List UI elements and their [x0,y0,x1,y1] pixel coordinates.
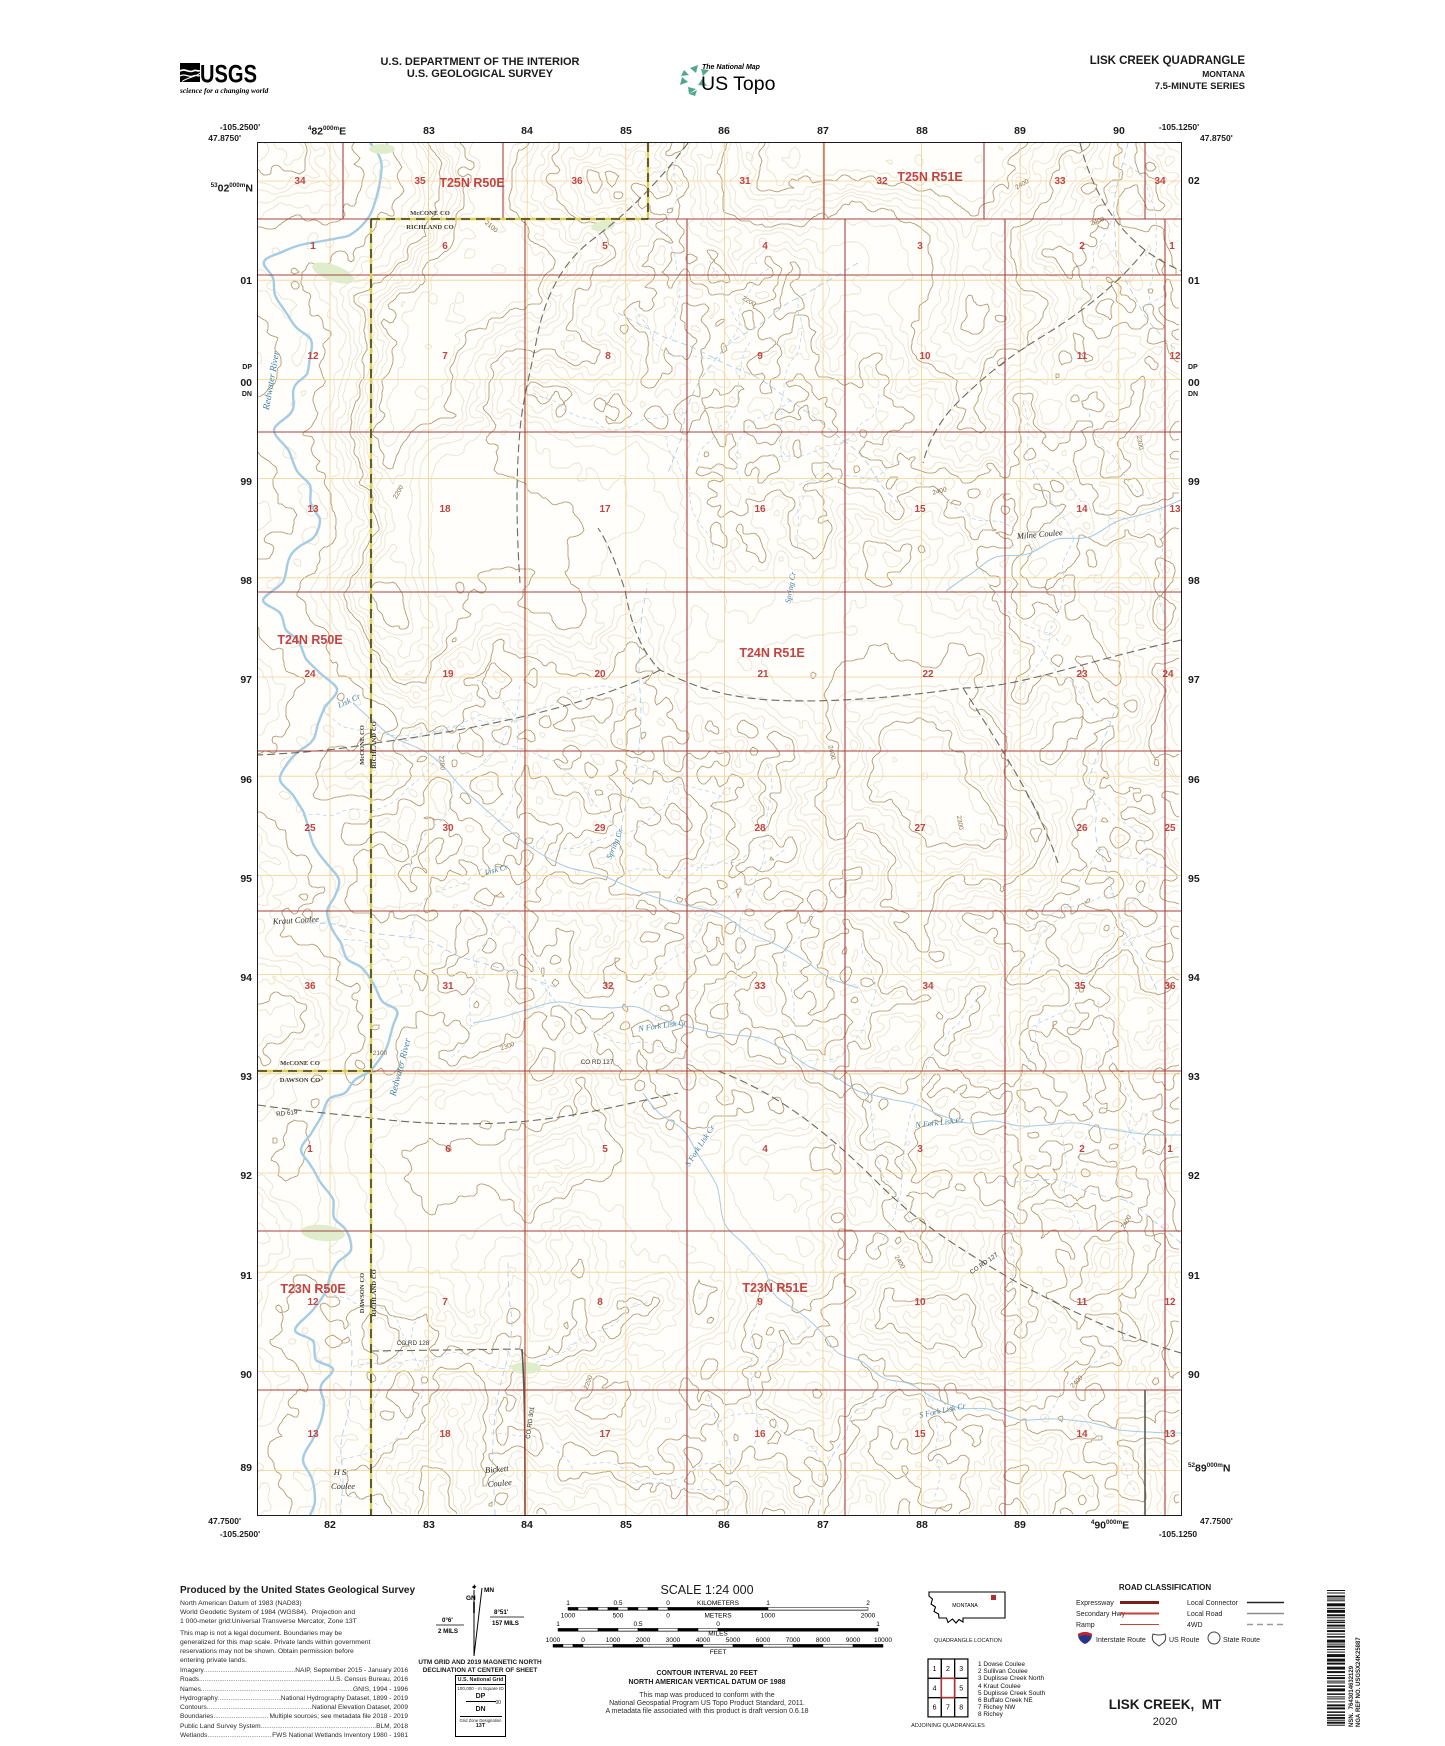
svg-text:32: 32 [876,176,888,187]
svg-text:23: 23 [1076,669,1088,680]
svg-text:12: 12 [307,1297,319,1308]
svg-text:22: 22 [922,669,934,680]
svg-text:2: 2 [1079,241,1085,252]
svg-text:8000: 8000 [816,1637,831,1644]
svg-text:DAWSON CO: DAWSON CO [359,1273,366,1313]
svg-text:24: 24 [304,669,316,680]
svg-text:2200: 2200 [741,295,757,308]
svg-text:2: 2 [866,1600,870,1607]
svg-text:S Fork Lisk Cr: S Fork Lisk Cr [683,1123,717,1168]
svg-text:S Fork Lisk Cr: S Fork Lisk Cr [918,1401,967,1420]
svg-text:10: 10 [914,1297,926,1308]
svg-text:US Topo: US Topo [701,73,776,95]
svg-text:GN: GN [466,1595,476,1602]
svg-text:METERS: METERS [704,1613,732,1620]
svg-text:13: 13 [1164,1429,1176,1440]
svg-text:18: 18 [439,1429,451,1440]
svg-text:6: 6 [442,241,448,252]
svg-text:3: 3 [917,241,923,252]
svg-text:34: 34 [1154,176,1166,187]
svg-text:2 MILS: 2 MILS [438,1628,458,1635]
svg-text:MN: MN [484,1587,494,1594]
svg-text:H S: H S [333,1467,347,1477]
svg-text:2100: 2100 [373,1050,388,1057]
svg-text:19: 19 [442,669,454,680]
svg-text:2400: 2400 [826,745,837,761]
svg-text:6: 6 [445,1144,451,1155]
svg-text:8: 8 [605,351,611,362]
svg-text:1: 1 [1167,1144,1173,1155]
svg-text:2000: 2000 [861,1613,876,1620]
svg-text:2200: 2200 [437,755,445,770]
svg-text:1000: 1000 [761,1613,776,1620]
svg-text:science for a changing world: science for a changing world [180,86,269,95]
svg-text:36: 36 [304,981,316,992]
svg-text:1: 1 [766,1600,770,1607]
svg-text:500: 500 [613,1613,624,1620]
svg-text:9000: 9000 [846,1637,861,1644]
svg-text:8°51': 8°51' [494,1609,509,1616]
svg-text:CO RD 127: CO RD 127 [581,1059,614,1066]
svg-text:Local Connector: Local Connector [1187,1600,1239,1607]
svg-text:T23N R50E: T23N R50E [280,1282,345,1296]
svg-text:Redwater River: Redwater River [262,350,282,411]
svg-text:1: 1 [876,1621,880,1628]
svg-text:12: 12 [1169,351,1181,362]
svg-text:18: 18 [439,504,451,515]
svg-text:35: 35 [414,176,426,187]
svg-text:32: 32 [602,981,614,992]
svg-text:33: 33 [754,981,766,992]
svg-text:Kraut Coulee: Kraut Coulee [272,914,320,926]
svg-text:2400: 2400 [1069,1374,1084,1389]
svg-text:7: 7 [442,351,448,362]
svg-text:1: 1 [933,1666,937,1673]
svg-text:McCONE CO: McCONE CO [280,1060,320,1067]
svg-text:25: 25 [1164,823,1176,834]
svg-text:RICHLAND CO: RICHLAND CO [371,721,378,768]
svg-text:3: 3 [959,1666,963,1673]
svg-text:0: 0 [581,1637,585,1644]
svg-text:17: 17 [599,504,611,515]
svg-text:1: 1 [556,1621,560,1628]
svg-text:N Fork Lisk Cr: N Fork Lisk Cr [637,1018,688,1034]
svg-text:16: 16 [754,1429,766,1440]
svg-text:3000: 3000 [666,1637,681,1644]
svg-text:13: 13 [1169,504,1181,515]
svg-text:14: 14 [1076,1429,1088,1440]
svg-text:21: 21 [757,669,769,680]
svg-text:1000: 1000 [606,1637,621,1644]
svg-text:Spring Cr: Spring Cr [783,570,798,604]
svg-text:CO RD 128: CO RD 128 [397,1340,430,1347]
svg-text:31: 31 [442,981,454,992]
svg-text:Redwater River: Redwater River [388,1037,413,1098]
svg-text:4: 4 [933,1685,937,1692]
svg-text:13: 13 [307,1429,319,1440]
svg-text:FEET: FEET [710,1649,727,1656]
svg-text:McCONE CO: McCONE CO [359,725,366,765]
svg-text:34: 34 [922,981,934,992]
svg-text:8: 8 [597,1297,603,1308]
svg-text:7: 7 [442,1297,448,1308]
svg-text:Bickett: Bickett [485,1463,510,1475]
svg-text:6000: 6000 [756,1637,771,1644]
svg-text:5: 5 [959,1685,963,1692]
svg-text:8: 8 [959,1705,963,1712]
svg-text:Spring Cr: Spring Cr [605,827,626,861]
svg-text:12: 12 [307,351,319,362]
svg-text:10: 10 [919,351,931,362]
svg-text:RD 619: RD 619 [276,1109,298,1118]
svg-text:Expressway: Expressway [1076,1600,1114,1607]
svg-text:24: 24 [1162,669,1174,680]
svg-text:13: 13 [307,504,319,515]
svg-text:1: 1 [1169,241,1175,252]
svg-text:USGS: USGS [200,63,257,89]
svg-text:16: 16 [754,504,766,515]
svg-text:0: 0 [666,1600,670,1607]
svg-text:4: 4 [762,241,768,252]
svg-text:2100: 2100 [483,220,499,235]
svg-text:1000: 1000 [546,1637,561,1644]
svg-text:1: 1 [310,241,316,252]
svg-text:0: 0 [666,1613,670,1620]
svg-text:McCONE CO: McCONE CO [410,210,450,217]
svg-text:KILOMETERS: KILOMETERS [697,1600,740,1607]
svg-text:36: 36 [571,176,583,187]
svg-text:6: 6 [933,1705,937,1712]
svg-text:4WD: 4WD [1187,1622,1203,1629]
svg-text:33: 33 [1054,176,1066,187]
svg-text:2000: 2000 [636,1637,651,1644]
svg-text:0.5: 0.5 [613,1600,622,1607]
svg-text:157 MILS: 157 MILS [492,1620,519,1627]
svg-text:DAWSON CO: DAWSON CO [280,1077,320,1084]
svg-text:Ramp: Ramp [1076,1622,1095,1629]
svg-text:29: 29 [594,823,606,834]
svg-text:10000: 10000 [874,1637,892,1644]
svg-text:11: 11 [1077,351,1088,362]
svg-text:20: 20 [594,669,606,680]
svg-text:15: 15 [914,1429,926,1440]
svg-text:28: 28 [754,823,766,834]
svg-text:2400: 2400 [1120,1214,1133,1230]
svg-text:Secondary Hwy: Secondary Hwy [1076,1611,1126,1618]
svg-text:T24N R50E: T24N R50E [277,633,342,647]
svg-text:2400: 2400 [1014,178,1030,191]
svg-text:T24N R51E: T24N R51E [739,646,804,660]
svg-text:0.5: 0.5 [633,1621,642,1628]
svg-text:2200: 2200 [392,484,405,500]
svg-text:1: 1 [566,1600,570,1607]
svg-text:2: 2 [1079,1144,1085,1155]
svg-text:11: 11 [1077,1297,1088,1308]
svg-text:Local Road: Local Road [1187,1611,1223,1618]
svg-text:30: 30 [442,823,454,834]
svg-text:1: 1 [307,1144,313,1155]
svg-text:4000: 4000 [696,1637,711,1644]
svg-text:14: 14 [1076,504,1088,515]
svg-text:Interstate Route: Interstate Route [1096,1637,1146,1644]
svg-text:26: 26 [1076,823,1088,834]
svg-text:9: 9 [757,351,763,362]
svg-text:7: 7 [946,1705,950,1712]
svg-text:4: 4 [762,1144,768,1155]
svg-text:0: 0 [716,1621,720,1628]
svg-text:31: 31 [739,176,751,187]
svg-text:Coulee: Coulee [487,1477,512,1489]
svg-text:34: 34 [294,176,306,187]
svg-text:T23N R51E: T23N R51E [742,1281,807,1295]
svg-text:17: 17 [599,1429,611,1440]
svg-text:27: 27 [914,823,926,834]
svg-text:2300: 2300 [955,815,964,831]
svg-text:35: 35 [1074,981,1086,992]
svg-text:3: 3 [917,1144,923,1155]
svg-text:MONTANA: MONTANA [952,1603,978,1609]
svg-text:5: 5 [602,241,608,252]
svg-text:2300: 2300 [499,1041,515,1053]
svg-text:State Route: State Route [1223,1637,1260,1644]
svg-text:5000: 5000 [726,1637,741,1644]
svg-text:12: 12 [1164,1297,1176,1308]
svg-text:T25N R51E: T25N R51E [897,170,962,184]
svg-text:RICHLAND CO: RICHLAND CO [406,224,453,231]
svg-text:9: 9 [757,1297,763,1308]
svg-text:Coulee: Coulee [331,1481,355,1491]
svg-text:15: 15 [914,504,926,515]
svg-text:US Route: US Route [1169,1637,1199,1644]
svg-text:25: 25 [304,823,316,834]
svg-text:1000: 1000 [561,1613,576,1620]
svg-text:T25N R50E: T25N R50E [439,176,504,190]
svg-text:CO RD 301: CO RD 301 [525,1406,537,1440]
svg-text:2400: 2400 [932,486,948,497]
svg-text:0°6': 0°6' [442,1617,453,1624]
svg-text:7000: 7000 [786,1637,801,1644]
svg-text:5: 5 [602,1144,608,1155]
svg-text:RICHLAND CO: RICHLAND CO [371,1269,378,1316]
svg-text:36: 36 [1164,981,1176,992]
svg-text:The National Map: The National Map [702,64,761,71]
svg-text:2: 2 [946,1666,950,1673]
